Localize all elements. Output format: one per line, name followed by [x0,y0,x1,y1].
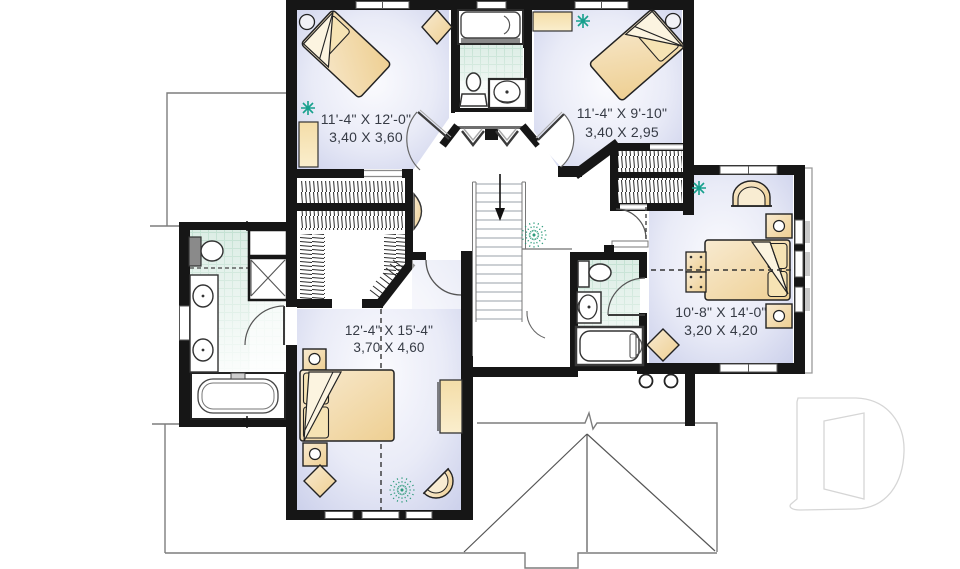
svg-text:3,70 X 4,60: 3,70 X 4,60 [353,340,424,355]
svg-text:3,20 X 4,20: 3,20 X 4,20 [684,322,758,338]
svg-text:3,40 X 3,60: 3,40 X 3,60 [329,129,403,145]
svg-text:11'-4" X 9'-10": 11'-4" X 9'-10" [577,105,667,121]
svg-text:11'-4" X 12'-0": 11'-4" X 12'-0" [321,111,411,127]
svg-text:3,40 X 2,95: 3,40 X 2,95 [585,124,659,140]
svg-text:12'-4" X 15'-4": 12'-4" X 15'-4" [345,323,433,338]
svg-text:10'-8" X 14'-0": 10'-8" X 14'-0" [675,304,766,320]
